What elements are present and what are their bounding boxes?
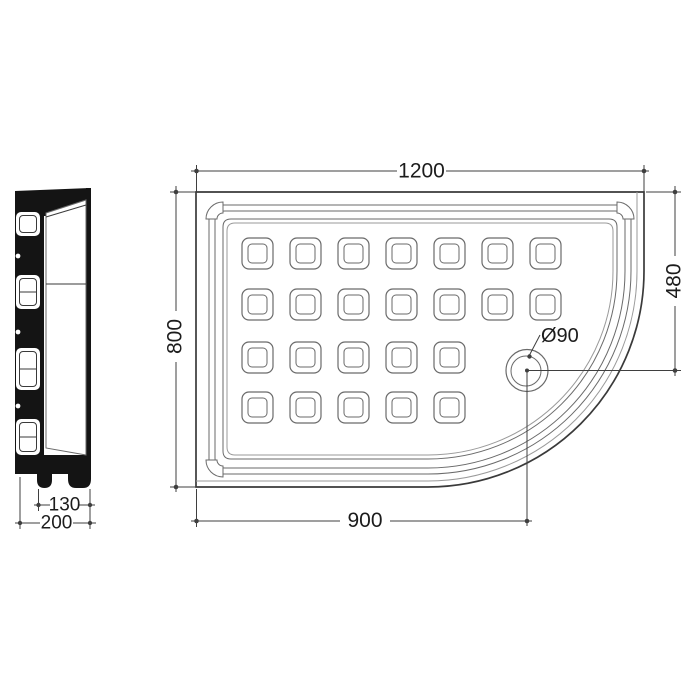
anti-slip-square xyxy=(338,392,369,423)
anti-slip-square xyxy=(434,342,465,373)
rim-corner-piece-top-left xyxy=(206,202,223,219)
anti-slip-square xyxy=(290,289,321,320)
side-profile-view xyxy=(15,188,91,488)
anti-slip-square-inner xyxy=(248,295,267,314)
anti-slip-square-inner xyxy=(392,244,411,263)
anti-slip-square-inner xyxy=(392,398,411,417)
dim-480-label: 480 xyxy=(663,263,686,298)
anti-slip-square-inner xyxy=(536,295,555,314)
anti-slip-square-inner xyxy=(536,244,555,263)
anti-slip-square xyxy=(242,342,273,373)
anti-slip-square xyxy=(242,238,273,269)
anti-slip-square-inner xyxy=(296,398,315,417)
anti-slip-square xyxy=(386,342,417,373)
dim-1200-label: 1200 xyxy=(398,160,445,183)
anti-slip-square-inner xyxy=(296,348,315,367)
anti-slip-square-inner xyxy=(392,348,411,367)
anti-slip-square xyxy=(242,392,273,423)
dim-800-label: 800 xyxy=(164,319,187,354)
dim-200-label: 200 xyxy=(41,513,73,534)
dimension-800: 800 xyxy=(164,186,197,492)
anti-slip-square xyxy=(290,342,321,373)
anti-slip-square-inner xyxy=(488,295,507,314)
drain-center-lines xyxy=(525,369,681,527)
anti-slip-square xyxy=(338,289,369,320)
anti-slip-square-inner xyxy=(248,398,267,417)
anti-slip-grid xyxy=(242,238,561,423)
profile-right-wall xyxy=(86,188,91,474)
anti-slip-square xyxy=(386,392,417,423)
anti-slip-square-inner xyxy=(488,244,507,263)
anti-slip-square xyxy=(338,342,369,373)
anti-slip-square-inner xyxy=(440,295,459,314)
anti-slip-square-inner xyxy=(344,295,363,314)
profile-foot-right xyxy=(68,469,91,488)
rim-corner-piece-top-right xyxy=(617,202,634,219)
anti-slip-square xyxy=(338,238,369,269)
anti-slip-square xyxy=(482,238,513,269)
dimension-1200: 1200 xyxy=(191,160,649,192)
anti-slip-square-inner xyxy=(440,348,459,367)
profile-foot-left xyxy=(37,469,52,488)
drain-diameter-label: Ø90 xyxy=(541,325,579,347)
dimension-480: 480 xyxy=(646,186,686,376)
anti-slip-square-inner xyxy=(296,244,315,263)
anti-slip-square xyxy=(290,392,321,423)
anti-slip-square-inner xyxy=(344,398,363,417)
anti-slip-square-inner xyxy=(440,244,459,263)
technical-drawing-canvas: 130 200 1200 xyxy=(0,0,700,700)
profile-interior-panel xyxy=(46,200,86,455)
dim-900-label: 900 xyxy=(347,509,382,532)
anti-slip-square-inner xyxy=(344,348,363,367)
shower-tray-drawing: 130 200 1200 xyxy=(0,0,700,700)
anti-slip-square xyxy=(434,392,465,423)
anti-slip-square xyxy=(386,289,417,320)
anti-slip-square xyxy=(386,238,417,269)
anti-slip-square-inner xyxy=(248,348,267,367)
anti-slip-square-inner xyxy=(248,244,267,263)
anti-slip-square-inner xyxy=(344,244,363,263)
anti-slip-square xyxy=(290,238,321,269)
anti-slip-square xyxy=(434,289,465,320)
anti-slip-square-inner xyxy=(296,295,315,314)
anti-slip-square-inner xyxy=(392,295,411,314)
anti-slip-square xyxy=(242,289,273,320)
anti-slip-square-inner xyxy=(440,398,459,417)
anti-slip-square xyxy=(434,238,465,269)
anti-slip-square xyxy=(530,238,561,269)
rim-corner-piece-bottom-left xyxy=(206,460,223,477)
dimension-900: 900 xyxy=(191,489,532,532)
drain-callout: Ø90 xyxy=(527,325,579,359)
anti-slip-square xyxy=(530,289,561,320)
anti-slip-square xyxy=(482,289,513,320)
